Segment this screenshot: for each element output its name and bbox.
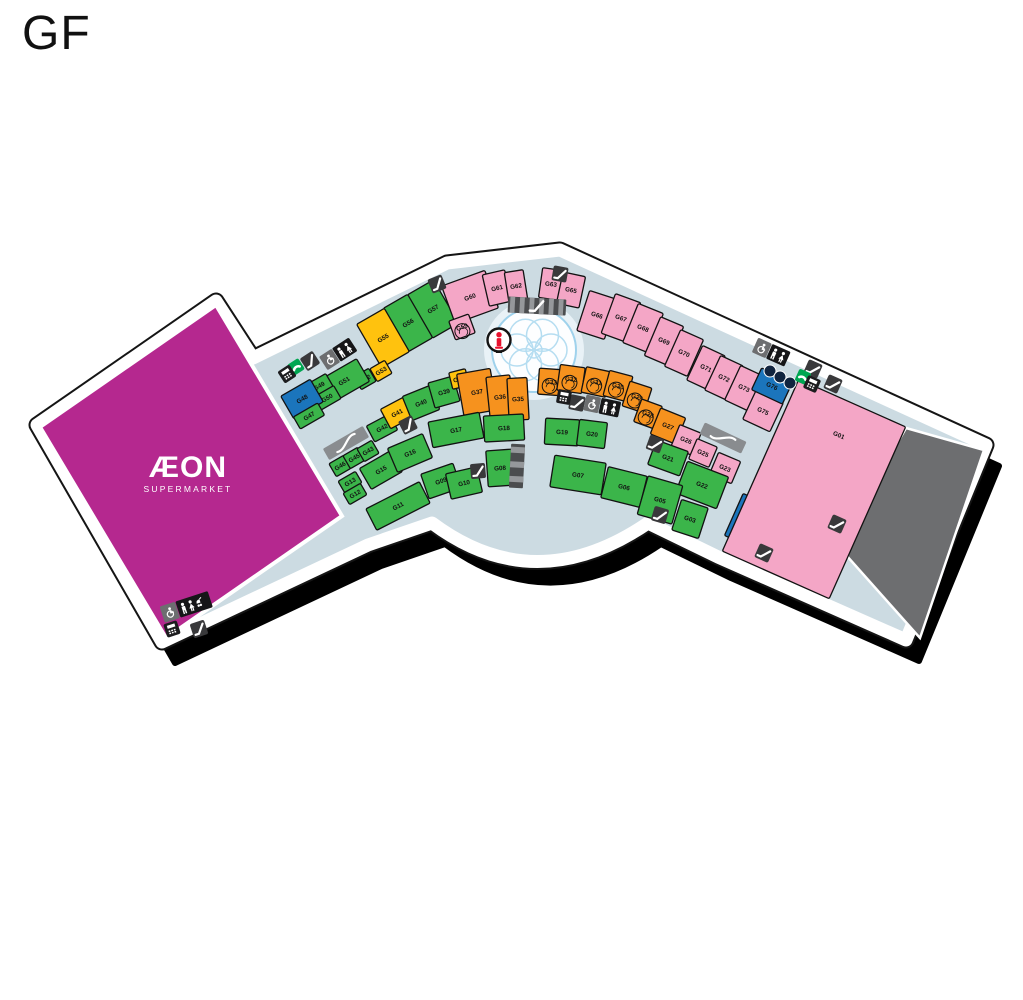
information-icon[interactable] (488, 329, 511, 354)
escalator-icon (470, 463, 486, 479)
mall-floor-map: G57G56G55G53G52G51G49G50G48G47G42G41G40G… (0, 0, 1023, 1000)
store-g18[interactable]: G18 (483, 414, 524, 442)
escalator-icon (508, 296, 567, 315)
store-label: G35 (512, 396, 525, 404)
escalator-icon (551, 265, 568, 282)
travelator-icon (509, 444, 525, 489)
atm-icon (556, 389, 572, 405)
anchor-sublabel: SUPERMARKET (144, 484, 233, 494)
store-label: G20 (586, 430, 599, 438)
anchor-label: ÆON (149, 451, 227, 484)
store-label: G19 (556, 429, 569, 437)
store-label: G36 (494, 394, 507, 402)
store-label: G08 (494, 465, 507, 473)
store-g32[interactable]: G32 (557, 364, 585, 393)
store-label: G18 (498, 425, 511, 433)
store-g20[interactable]: G20 (577, 419, 608, 448)
store-g19[interactable]: G19 (544, 418, 579, 446)
store-label: G33 (545, 379, 558, 387)
